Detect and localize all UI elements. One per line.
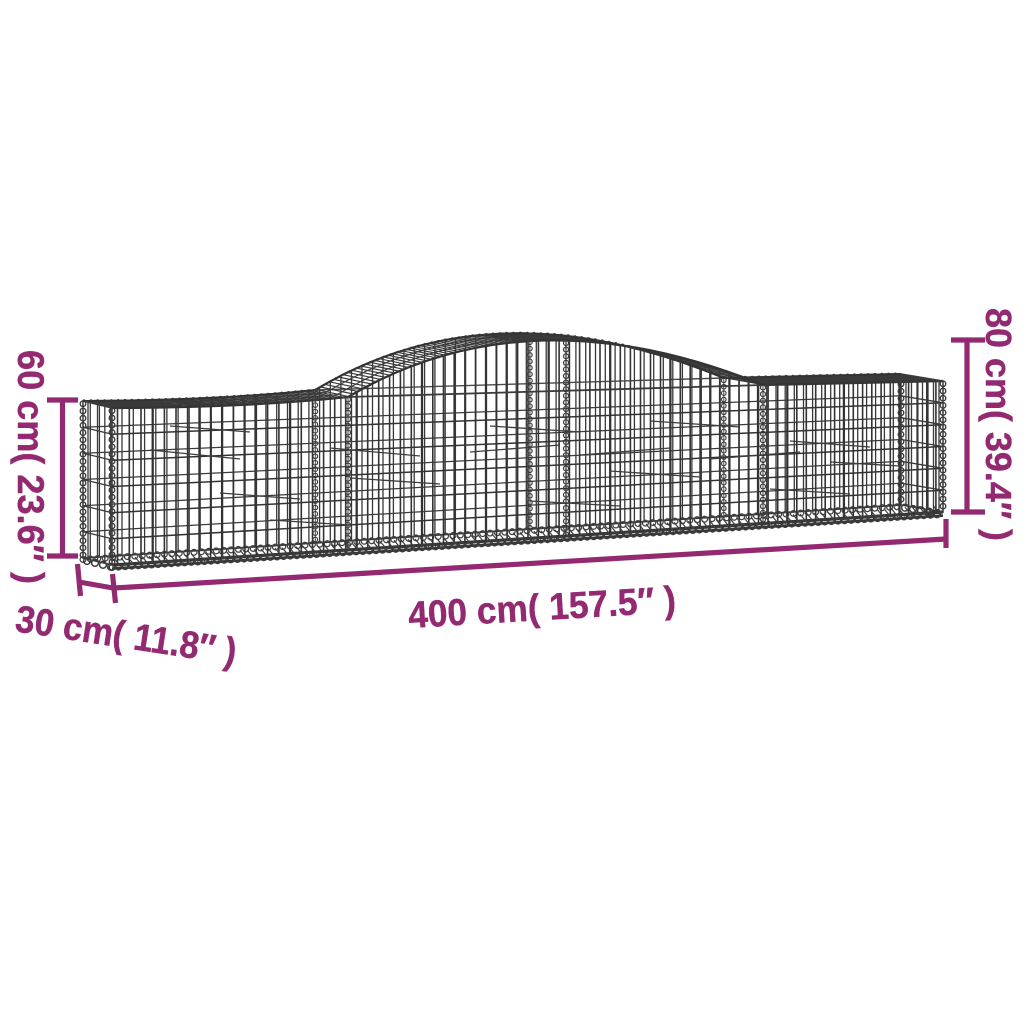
svg-text:80 cm( 39.4″ ): 80 cm( 39.4″ )	[978, 308, 1019, 541]
svg-text:60 cm( 23.6″ ): 60 cm( 23.6″ )	[10, 350, 52, 584]
